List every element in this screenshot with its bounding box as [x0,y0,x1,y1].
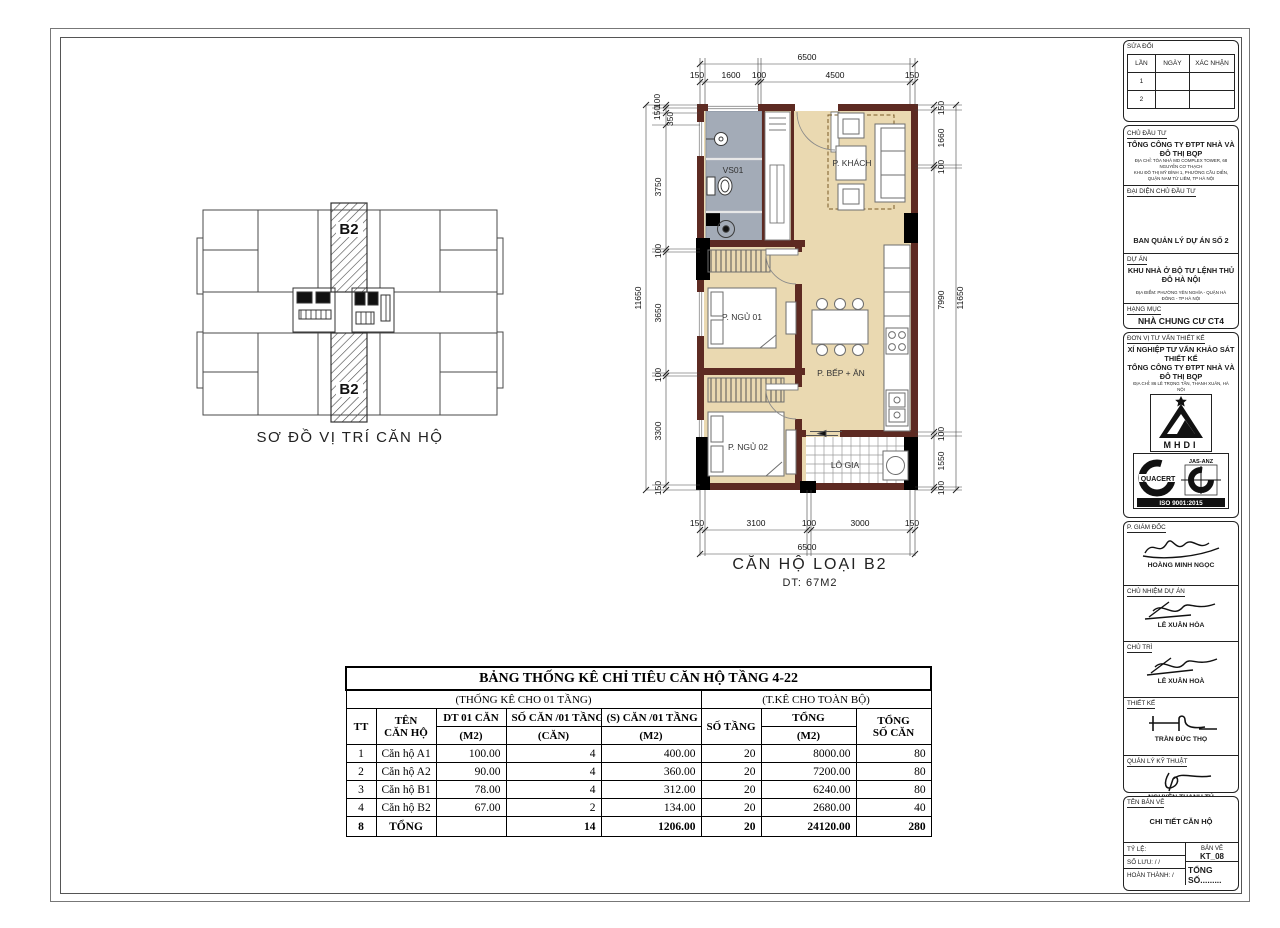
key-plan-b2-bottom-label: B2 [339,381,358,398]
signature-section: CHỦ TRÌ LÊ XUÂN HOÀ [1124,641,1238,695]
consultant-address: ĐỊA CHỈ: 86 LÊ TRỌNG TẤN, THANH XUÂN, HÀ… [1130,382,1233,393]
dining-set [812,299,868,356]
investor-rep-name: BAN QUẢN LÝ DỰ ÁN SỐ 2 [1127,236,1235,245]
col-subheader-scan: (M2) [601,727,701,745]
dresser-icon [786,302,796,334]
table-group-right: (T.KÊ CHO TOÀN BỘ) [701,690,931,709]
cell: 7200.00 [761,763,856,781]
chair-icon [817,299,828,310]
cell: Căn hộ B1 [376,781,436,799]
dim-left-1: 150 [652,106,662,120]
dim-bottom-2: 100 [802,518,816,528]
col-subheader-socan: (CĂN) [506,727,601,745]
key-plan-b2-top-label: B2 [339,221,358,238]
dim-top-4: 150 [905,70,919,80]
kitchen-counter [884,245,910,431]
consultant-line2: TỔNG CÔNG TY ĐTPT NHÀ VÀ ĐÔ THỊ BQP [1127,363,1235,381]
project-label: DỰ ÁN [1127,256,1147,265]
cell: 20 [701,745,761,763]
dim-right-total: 11650 [955,286,965,309]
col-subheader-tong: (M2) [761,727,856,745]
table-total-row: 8 TỔNG 14 1206.00 20 24120.00 280 [346,817,931,837]
dim-top-total: 6500 [798,52,817,62]
toilet-tank-icon [707,177,715,195]
wardrobe-icon [708,250,770,272]
floor-plan: VS01 P. KHÁCH P. NGỦ 01 P. BẾP + ĂN P. N… [600,40,1020,600]
room-label-bed2: P. NGỦ 02 [728,441,768,452]
dim-bottom-4: 150 [905,518,919,528]
project-address: ĐỊA ĐIỂM: PHƯỜNG YÊN NGHĨA - QUẬN HÀ ĐÔN… [1130,291,1233,302]
revision-col-xacnhan: XÁC NHẬN [1190,55,1235,73]
signature-role: P. GIÁM ĐỐC [1127,524,1166,533]
revision-col-ngay: NGÀY [1155,55,1189,73]
investor-address2: KHU ĐÔ THỊ MỸ ĐÌNH 1, PHƯỜNG CẦU DIỄN, Q… [1130,170,1233,181]
signature-name: HOÀNG MINH NGỌC [1127,562,1235,569]
cell: 80 [856,745,931,763]
cell: 14 [506,817,601,837]
dim-left-total: 11650 [633,286,643,309]
cell: 8000.00 [761,745,856,763]
item-section: HẠNG MỤC NHÀ CHUNG CƯ CT4 [1124,303,1238,333]
cell: 20 [701,781,761,799]
dresser-icon [786,430,796,474]
room-label-kitchen: P. BẾP + ĂN [817,368,865,378]
floor-plan-caption: CĂN HỘ LOẠI B2 [700,556,920,574]
dim-bottom-0: 150 [690,518,704,528]
col-header-tongsocan-l1: TỔNG [862,715,926,727]
cell: Căn hộ B2 [376,799,436,817]
investor-rep-label: ĐẠI DIỆN CHỦ ĐẦU TƯ [1127,188,1196,197]
dim-left-2: 350 [665,112,675,126]
signature-section: P. GIÁM ĐỐC HOÀNG MINH NGỌC [1124,522,1238,583]
signature-name: LÊ XUÂN HOÀ [1127,678,1235,685]
dim-right-4: 100 [936,427,946,441]
cell: 400.00 [601,745,701,763]
table-row: 2 Căn hộ A2 90.00 4 360.00 20 7200.00 80 [346,763,931,781]
revision-table: LẦN NGÀY XÁC NHẬN 1 2 [1127,54,1235,109]
dim-left-7: 3300 [653,421,663,440]
dining-table [812,310,868,344]
scale-label: TỶ LỆ: [1124,843,1185,855]
cell: 2 [506,799,601,817]
col-header-name: TÊN CĂN HỘ [376,709,436,745]
room-label-loggia: LÔ GIA [831,460,860,470]
drawing-sheet: B2 B2 SƠ ĐỒ VỊ TRÍ CĂN HỘ [0,0,1280,928]
cell: 4 [506,763,601,781]
quacert-text: QUACERT [1141,476,1176,483]
cell [436,817,506,837]
chair-icon [835,345,846,356]
complete-label: HOÀN THÀNH: / [1124,868,1185,881]
stove-icon [886,328,908,354]
drawing-name-label: TÊN BẢN VẼ [1127,799,1164,808]
cell: 134.00 [601,799,701,817]
sheet-number: KT_08 [1186,852,1238,861]
cell: 40 [856,799,931,817]
footer-grid: TỶ LỆ: SỐ LƯU: / / HOÀN THÀNH: / BẢN VẼ … [1124,842,1238,885]
cell: 2 [346,763,376,781]
revision-col-lan: LẦN [1128,55,1156,73]
entry-cabinet [765,112,790,240]
table-row: 3 Căn hộ B1 78.00 4 312.00 20 6240.00 80 [346,781,931,799]
title-block: SỬA ĐỔI LẦN NGÀY XÁC NHẬN 1 2 CHỦ ĐẦU TƯ… [1123,40,1239,892]
cell: Căn hộ A1 [376,745,436,763]
apartment-statistics-table: BẢNG THỐNG KÊ CHỈ TIÊU CĂN HỘ TẦNG 4-22 … [345,666,932,837]
dim-right-1: 1660 [936,128,946,147]
col-header-scan: (S) CĂN /01 TẦNG [601,709,701,727]
key-plan: B2 B2 SƠ ĐỒ VỊ TRÍ CĂN HỘ [185,190,525,460]
revision-row-2: 2 [1128,91,1156,109]
dim-left-8: 150 [653,481,663,495]
empty-cell [1190,91,1235,109]
cell: Căn hộ A2 [376,763,436,781]
cell: 78.00 [436,781,506,799]
jas-anz-text: JAS-ANZ [1189,459,1214,465]
signature-icon [1139,711,1223,735]
cell: 80 [856,763,931,781]
dim-right-0: 150 [936,101,946,115]
mhdi-logo-icon: MHDI [1150,394,1212,452]
chair-icon [817,345,828,356]
cell: 67.00 [436,799,506,817]
drawing-name-box: TÊN BẢN VẼ CHI TIẾT CĂN HỘ TỶ LỆ: SỐ LƯU… [1123,796,1239,891]
cell: 20 [701,817,761,837]
room-label-bed1: P. NGỦ 01 [722,311,762,322]
iso-text: ISO 9001:2015 [1159,500,1203,507]
project-section: DỰ ÁN KHU NHÀ Ở BỘ TƯ LỆNH THỦ ĐÔ HÀ NỘI… [1124,253,1238,301]
col-header-name-l2: CĂN HỘ [382,727,431,739]
col-subheader-dt: (M2) [436,727,506,745]
item-label: HẠNG MỤC [1127,306,1161,315]
consultant-label: ĐƠN VỊ TƯ VẤN THIẾT KẾ [1127,335,1205,344]
empty-cell [1190,73,1235,91]
cell: 6240.00 [761,781,856,799]
dim-bottom-total: 6500 [798,542,817,552]
col-header-tongsocan: TỔNG SỐ CĂN [856,709,931,745]
chair-icon [853,299,864,310]
quacert-logo-icon: QUACERT JAS-ANZ ISO 9001:2015 [1133,453,1229,509]
bedroom2-furniture [708,378,796,476]
cell: 20 [701,799,761,817]
signature-icon [1139,535,1223,561]
cell: 100.00 [436,745,506,763]
project-name: KHU NHÀ Ở BỘ TƯ LỆNH THỦ ĐÔ HÀ NỘI [1127,266,1235,284]
consultant-box: ĐƠN VỊ TƯ VẤN THIẾT KẾ XÍ NGHIỆP TƯ VẤN … [1123,332,1239,518]
cell: 90.00 [436,763,506,781]
signature-icon [1139,655,1223,677]
signature-role: CHỦ TRÌ [1127,644,1152,653]
col-header-name-l1: TÊN [382,715,431,727]
investor-label: CHỦ ĐẦU TƯ [1127,130,1167,139]
dim-bottom-3: 3000 [851,518,870,528]
cell: 8 [346,817,376,837]
dim-left-3: 3750 [653,177,663,196]
empty-cell [1155,91,1189,109]
sheet-label: BẢN VẼ [1186,843,1238,852]
signature-role: QUẢN LÝ KỸ THUẬT [1127,758,1187,767]
cell: 3 [346,781,376,799]
cell: 4 [506,781,601,799]
investor-box: CHỦ ĐẦU TƯ TỔNG CÔNG TY ĐTPT NHÀ VÀ ĐÔ T… [1123,125,1239,329]
key-plan-caption: SƠ ĐỒ VỊ TRÍ CĂN HỘ [257,428,444,446]
dim-left-4: 100 [653,244,663,258]
dim-top-3: 4500 [826,70,845,80]
revision-row-1: 1 [1128,73,1156,91]
col-header-socan: SỐ CĂN /01 TẦNG [506,709,601,727]
dim-top-1: 1600 [722,70,741,80]
footer-left: TỶ LỆ: SỐ LƯU: / / HOÀN THÀNH: / [1124,843,1186,885]
col-header-tong: TỔNG [761,709,856,727]
table-row: 1 Căn hộ A1 100.00 4 400.00 20 8000.00 8… [346,745,931,763]
signature-name: LÊ XUÂN HÒA [1127,622,1235,629]
empty-cell [1155,73,1189,91]
dim-top-2: 100 [752,70,766,80]
signature-section: THIẾT KẾ TRẦN ĐỨC THỌ [1124,697,1238,753]
total-sheets-label: TỔNG SỐ......... [1186,861,1238,885]
signature-icon [1139,769,1223,793]
cell: 1206.00 [601,817,701,837]
mhdi-logo-text: MHDI [1164,440,1199,450]
dim-bottom-1: 3100 [747,518,766,528]
cell: 360.00 [601,763,701,781]
footer-right: BẢN VẼ KT_08 TỔNG SỐ......... [1186,843,1238,885]
col-header-sotang: SỐ TẦNG [701,709,761,745]
dim-top-0: 150 [690,70,704,80]
investor-rep-section: ĐẠI DIỆN CHỦ ĐẦU TƯ BAN QUẢN LÝ DỰ ÁN SỐ… [1124,185,1238,251]
signatures-box: P. GIÁM ĐỐC HOÀNG MINH NGỌC CHỦ NHIỆM DỰ… [1123,521,1239,793]
signature-icon [1139,599,1223,621]
cell: 4 [346,799,376,817]
signature-name: TRẦN ĐỨC THỌ [1127,736,1235,743]
signature-role: THIẾT KẾ [1127,700,1155,709]
investor-section: CHỦ ĐẦU TƯ TỔNG CÔNG TY ĐTPT NHÀ VÀ ĐÔ T… [1124,128,1238,183]
cell: 2680.00 [761,799,856,817]
dim-right-5: 1550 [936,451,946,470]
sofa-icon [875,124,905,202]
cell: 80 [856,781,931,799]
consultant-line1: XÍ NGHIỆP TƯ VẤN KHẢO SÁT THIẾT KẾ [1127,345,1235,363]
room-label-bath: VS01 [723,165,744,175]
washing-machine-icon [883,451,908,480]
col-header-tt: TT [346,709,376,745]
drawing-name: CHI TIẾT CĂN HỘ [1127,817,1235,826]
dim-right-3: 7990 [936,290,946,309]
signature-section: CHỦ NHIỆM DỰ ÁN LÊ XUÂN HÒA [1124,585,1238,639]
cell: 312.00 [601,781,701,799]
col-header-tongsocan-l2: SỐ CĂN [862,727,926,739]
chair-icon [835,299,846,310]
revision-box: SỬA ĐỔI LẦN NGÀY XÁC NHẬN 1 2 [1123,40,1239,122]
cell: 4 [506,745,601,763]
col-header-dt: DT 01 CĂN [436,709,506,727]
table-title: BẢNG THỐNG KÊ CHỈ TIÊU CĂN HỘ TẦNG 4-22 [346,667,931,690]
revision-title: SỬA ĐỔI [1127,43,1153,51]
cell: 24120.00 [761,817,856,837]
signature-role: CHỦ NHIỆM DỰ ÁN [1127,588,1185,597]
investor-address1: ĐỊA CHỈ: TÒA NHÀ MD COMPLEX TOWER, 68 NG… [1130,159,1233,170]
cell: 1 [346,745,376,763]
table-row: 4 Căn hộ B2 67.00 2 134.00 20 2680.00 40 [346,799,931,817]
table-group-left: (THỐNG KÊ CHO 01 TẦNG) [346,690,701,709]
dim-right-6: 100 [936,481,946,495]
save-label: SỐ LƯU: / / [1124,855,1185,868]
room-label-living: P. KHÁCH [832,158,871,168]
dim-left-6: 100 [653,368,663,382]
cell: TỔNG [376,817,436,837]
item-name: NHÀ CHUNG CƯ CT4 [1127,316,1235,327]
chair-icon [853,345,864,356]
floor-plan-area: DT: 67M2 [700,577,920,589]
cell: 280 [856,817,931,837]
cell: 20 [701,763,761,781]
dim-right-2: 100 [936,160,946,174]
investor-name: TỔNG CÔNG TY ĐTPT NHÀ VÀ ĐÔ THỊ BQP [1127,140,1235,158]
dim-left-5: 3650 [653,303,663,322]
